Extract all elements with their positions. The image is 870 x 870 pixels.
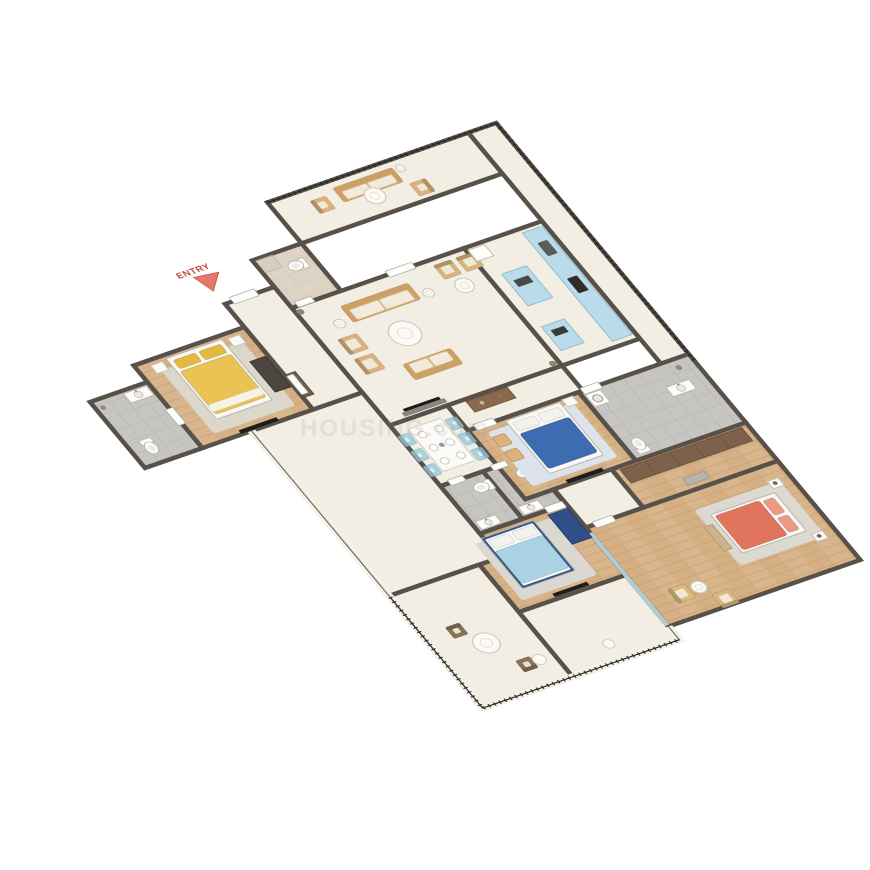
- floorplan-image: ENTRYHOUSING.com: [0, 0, 870, 870]
- watermark-text: HOUSING.com: [300, 415, 490, 442]
- floorplan-svg: ENTRYHOUSING.com: [0, 0, 870, 870]
